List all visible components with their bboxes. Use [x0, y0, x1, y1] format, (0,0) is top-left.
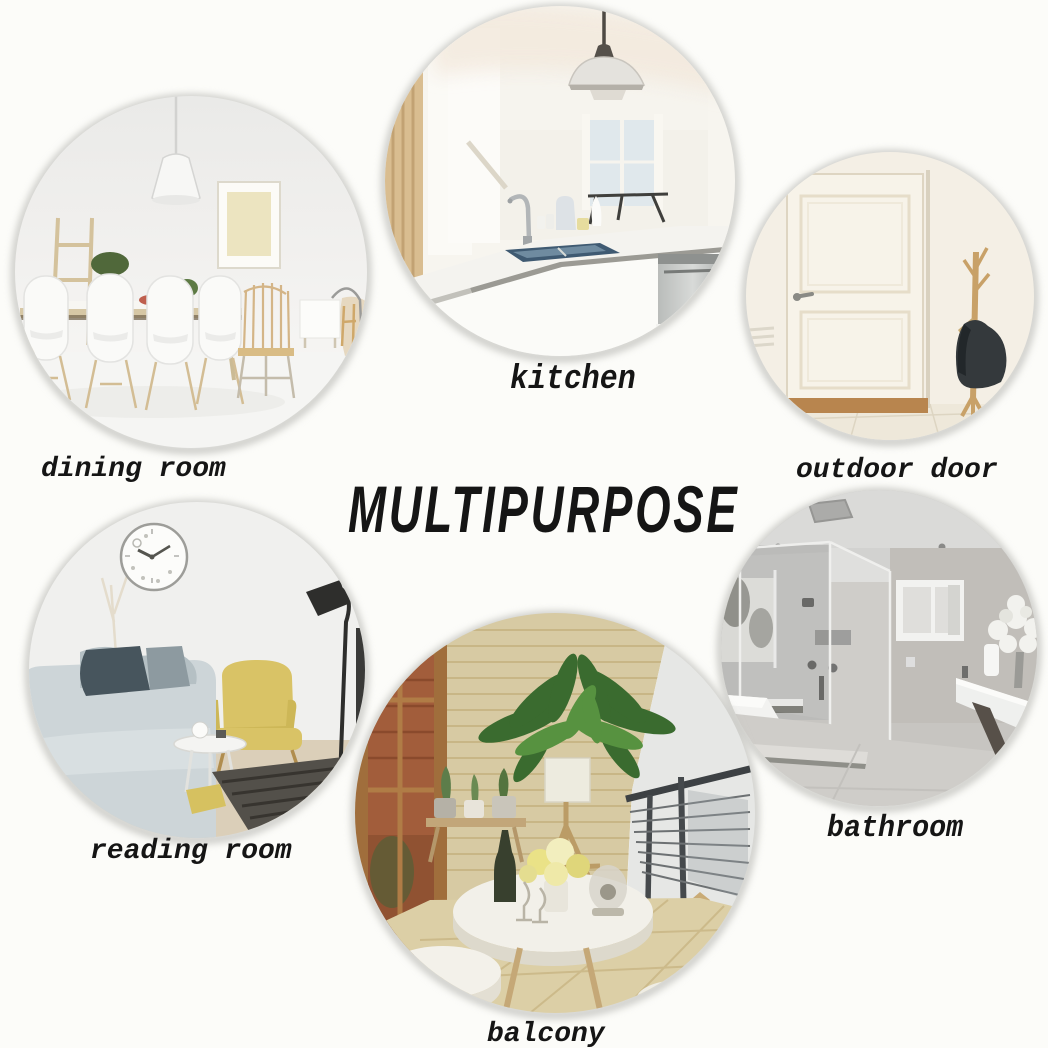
svg-text:dining room: dining room — [41, 454, 226, 485]
svg-text:balcony: balcony — [487, 1019, 606, 1048]
svg-text:outdoor door: outdoor door — [796, 455, 998, 486]
svg-text:kitchen: kitchen — [510, 359, 636, 398]
svg-text:MULTIPURPOSE: MULTIPURPOSE — [348, 473, 740, 546]
svg-text:bathroom: bathroom — [827, 810, 963, 845]
svg-text:reading room: reading room — [90, 836, 292, 867]
